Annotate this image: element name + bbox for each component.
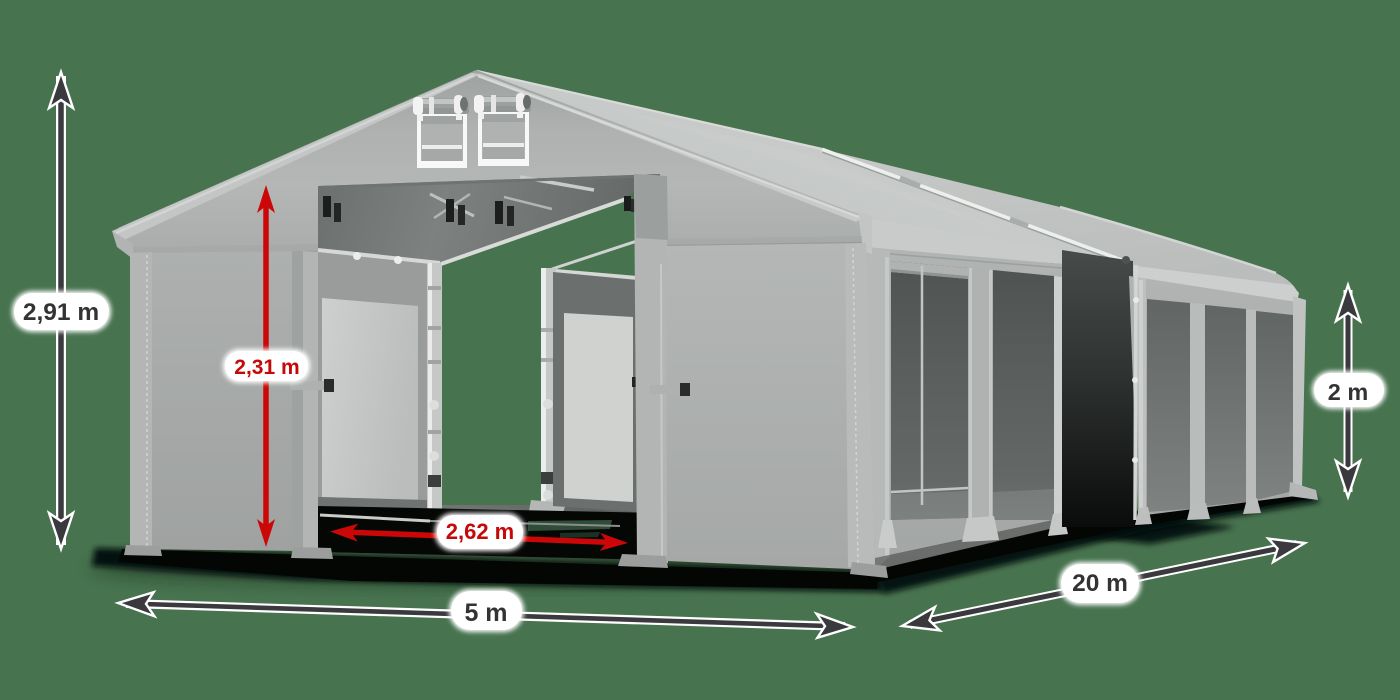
svg-text:2,62 m: 2,62 m <box>446 519 515 544</box>
svg-text:2,31 m: 2,31 m <box>234 356 299 379</box>
svg-text:20 m: 20 m <box>1072 570 1128 597</box>
svg-text:2 m: 2 m <box>1328 379 1369 405</box>
svg-text:2,91 m: 2,91 m <box>23 299 99 326</box>
svg-text:5 m: 5 m <box>464 599 507 627</box>
